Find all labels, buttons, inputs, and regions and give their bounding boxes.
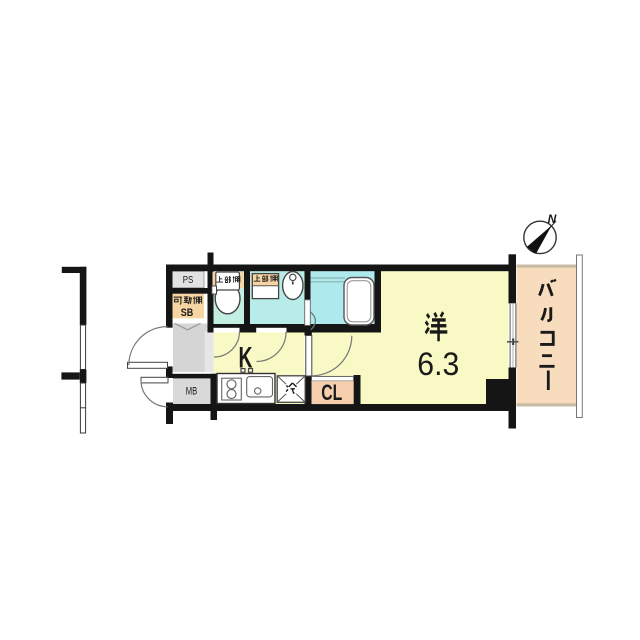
svg-text:SB: SB <box>181 307 194 319</box>
svg-text:CL: CL <box>321 380 342 405</box>
svg-text:MB: MB <box>186 385 198 397</box>
svg-text:PS: PS <box>183 275 194 286</box>
svg-text:N: N <box>548 212 557 226</box>
svg-text:6.3: 6.3 <box>417 346 459 382</box>
svg-text:K: K <box>239 342 253 375</box>
